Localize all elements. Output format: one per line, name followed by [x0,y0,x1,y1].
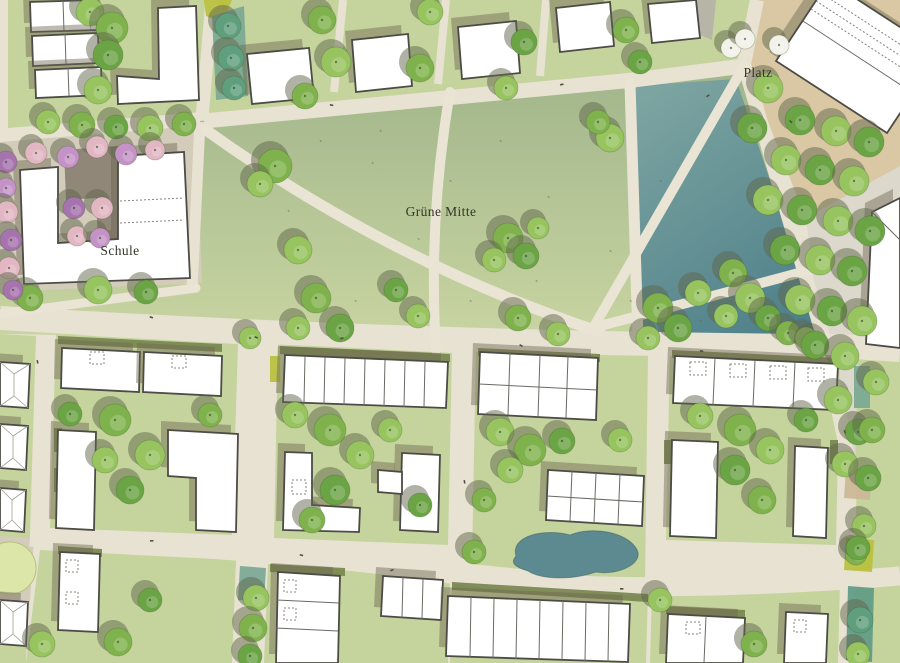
tree-highlight [3,208,14,219]
label-schule: Schule [100,243,139,258]
tree-highlight [763,195,778,210]
tree-highlight [7,236,18,247]
tree-trunk [249,655,251,657]
tree-trunk [875,381,877,383]
tree-trunk [609,137,611,139]
tree-trunk [8,267,10,269]
tree-trunk [311,519,313,521]
tree-trunk [429,11,431,13]
tree-highlight [872,378,885,391]
tree-highlight [780,245,795,260]
tree-trunk [561,440,563,442]
tree-highlight [554,330,566,342]
tree-trunk [844,463,846,465]
tree-trunk [619,439,621,441]
label-gruene-mitte: Grüne Mitte [406,204,477,219]
tree-trunk [274,165,276,167]
villa [549,0,614,52]
slab-footprint [143,352,222,396]
tree-trunk [304,95,306,97]
tree-highlight [336,324,350,338]
slab [136,343,222,396]
tree-trunk [149,454,151,456]
tree-highlight [868,426,881,439]
tree-trunk [639,61,641,63]
tree-highlight [101,456,114,469]
tree-trunk [837,399,839,401]
tree-highlight [735,425,751,441]
label-platz: Platz [744,65,773,80]
tree-trunk [778,44,780,46]
tree-highlight [93,143,104,154]
tree-highlight [94,286,108,300]
tree-highlight [44,118,56,130]
tree-highlight [831,126,846,141]
tree-highlight [795,115,810,130]
rowhouse-band-footprint [446,596,630,662]
tree-trunk [761,499,763,501]
tree-trunk [294,414,296,416]
tree-highlight [722,312,734,324]
tree-highlight [64,153,75,164]
tree-highlight [103,50,118,65]
tree-trunk [99,237,101,239]
slab-footprint [61,348,140,392]
tree-highlight [502,84,514,96]
slab-footprint [670,440,718,538]
tree-trunk [5,161,7,163]
tree-trunk [625,29,627,31]
tree-highlight [857,316,872,331]
tree-highlight [674,324,688,338]
slab-footprint [378,470,402,494]
tree-trunk [125,153,127,155]
slab-grid [471,343,598,420]
tree-highlight [864,474,877,487]
rowhouse-band [276,346,448,408]
tree-highlight [644,334,656,346]
villa-footprint [648,0,700,43]
tree-trunk [537,227,539,229]
tree-highlight [256,180,269,193]
tree-highlight [730,465,745,480]
hipped-house-footprint [0,362,30,408]
tree-trunk [209,414,211,416]
tree-highlight [696,412,709,425]
slab [777,603,828,663]
villa-footprint [556,2,614,52]
rowhouse-band [439,587,630,662]
tree-highlight [750,640,763,653]
tree-trunk [252,627,254,629]
tree-trunk [871,429,873,431]
tree-trunk [129,489,131,491]
slab [663,431,718,538]
tree-trunk [517,317,519,319]
slab-footprint [276,572,340,663]
tree-highlight [525,445,541,461]
tree-trunk [315,297,317,299]
slab-footprint [58,552,100,632]
tree-trunk [819,169,821,171]
tree-highlight [224,22,237,35]
tree-trunk [751,127,753,129]
tree-trunk [799,299,801,301]
tree-highlight [763,83,778,98]
tree-trunk [76,235,78,237]
tree-highlight [864,137,879,152]
slab [374,567,443,620]
tree-highlight [10,287,20,297]
tree-highlight [356,451,370,465]
tree-trunk [334,489,336,491]
tree-trunk [41,643,43,645]
tree-trunk [107,54,109,56]
tree-highlight [126,486,140,500]
tree-trunk [10,239,12,241]
tree-highlight [776,42,786,52]
slab-grid [539,461,644,526]
tree-highlight [834,396,848,410]
tree-highlight [833,216,848,231]
tree-trunk [6,211,8,213]
tree-trunk [853,180,855,182]
tree-trunk [97,89,99,91]
tree-trunk [183,123,185,125]
tree-trunk [699,415,701,417]
tree-highlight [594,118,606,130]
slab [49,421,96,530]
tree-trunk [101,207,103,209]
tree-highlight [311,293,326,308]
tree-trunk [359,454,361,456]
tree-trunk [419,67,421,69]
tree-trunk [819,259,821,261]
tree-trunk [339,327,341,329]
tree-trunk [863,525,865,527]
tree-trunk [473,551,475,553]
tree-trunk [767,87,769,89]
tree-highlight [94,86,108,100]
tree-trunk [89,11,91,13]
tree-trunk [149,599,151,601]
tree-trunk [867,477,869,479]
tree-trunk [732,272,734,274]
tree-trunk [767,199,769,201]
tree-trunk [35,152,37,154]
slab-footprint [784,612,828,663]
pond-layer [513,531,638,578]
tree-highlight [122,150,133,161]
tree-highlight [854,650,866,662]
tree-highlight [558,437,571,450]
tree-trunk [814,344,816,346]
tree-highlight [856,616,869,629]
tree-trunk [233,87,235,89]
tree-trunk [329,429,331,431]
tree-highlight [249,624,263,638]
masterplan-svg: Grüne Mitte Schule Platz [0,0,900,663]
tree-highlight [490,256,502,268]
tree-highlight [827,306,842,321]
tree-highlight [802,416,814,428]
tree-trunk [868,141,870,143]
tree-trunk [730,47,732,49]
tree-trunk [149,127,151,129]
tree-trunk [744,38,746,40]
tree-trunk [104,459,106,461]
tree-trunk [844,355,846,357]
tree-trunk [73,207,75,209]
tree-trunk [805,419,807,421]
tree-trunk [81,124,83,126]
hipped-house-footprint [0,424,28,470]
tree-trunk [509,469,511,471]
tree-highlight [308,516,321,529]
tree-highlight [112,123,124,135]
tree-trunk [96,146,98,148]
tree-trunk [767,317,769,319]
tree-highlight [758,496,772,510]
tree-trunk [749,297,751,299]
tree-highlight [811,341,825,355]
tree-trunk [67,156,69,158]
tree-highlight [426,8,439,21]
tree-trunk [483,499,485,501]
pond [513,531,638,578]
tree-highlight [742,36,752,46]
tree-trunk [145,291,147,293]
tree-trunk [831,310,833,312]
tree-trunk [799,119,801,121]
tree-trunk [647,337,649,339]
tree-highlight [38,640,51,653]
tree-trunk [739,429,741,431]
tree-highlight [622,26,635,39]
tree-highlight [781,155,796,170]
tree-highlight [294,324,306,336]
slab-footprint [793,446,828,538]
tree-trunk [597,121,599,123]
tree-highlight [854,544,866,556]
tree-trunk [529,449,531,451]
tree-highlight [534,224,545,235]
tree-trunk [505,87,507,89]
slab-footprint [381,576,443,620]
tree-trunk [154,149,156,151]
person-dot [620,588,623,590]
tree-trunk [659,599,661,601]
tree-trunk [230,57,232,59]
tree-highlight [70,204,81,215]
tree-trunk [869,230,871,232]
tree-highlight [766,446,780,460]
tree-highlight [206,411,218,423]
tree-highlight [480,496,492,508]
tree-highlight [331,57,346,72]
tree-trunk [769,449,771,451]
tree-highlight [414,312,426,324]
tree-trunk [395,289,397,291]
tree-trunk [851,270,853,272]
tree-highlight [325,425,341,441]
tree-trunk [389,429,391,431]
tree-highlight [392,286,404,298]
tree-highlight [270,161,287,178]
tree-highlight [66,410,78,422]
tree-highlight [252,594,265,607]
tree-trunk [861,320,863,322]
tree-trunk [69,413,71,415]
tree-highlight [470,548,482,560]
tree-trunk [837,220,839,222]
tree-highlight [849,176,864,191]
tree-trunk [734,469,736,471]
tree-trunk [117,641,119,643]
slab [786,437,828,538]
tree-highlight [227,54,240,67]
tree-trunk [335,61,337,63]
tree-highlight [294,246,308,260]
tree-highlight [514,314,527,327]
tree-highlight [146,596,158,608]
tree-trunk [753,643,755,645]
tree-trunk [255,597,257,599]
hipped-house-footprint [0,488,26,532]
tree-trunk [297,249,299,251]
tree-highlight [728,45,738,55]
tree-trunk [507,237,509,239]
tree-trunk [801,209,803,211]
tree-highlight [230,84,242,96]
rowhouse-band-footprint [283,355,448,408]
tree-highlight [416,64,430,78]
tree-highlight [246,334,257,345]
tree-highlight [606,134,620,148]
tree-trunk [525,255,527,257]
tree-trunk [697,292,699,294]
tree-highlight [26,294,39,307]
tree-highlight [386,426,398,438]
person-dot [150,540,153,542]
tree-highlight [797,205,812,220]
tree-highlight [291,411,304,424]
tree-highlight [815,255,830,270]
tree-trunk [785,159,787,161]
tree-highlight [522,252,535,265]
tree-trunk [417,315,419,317]
tree-trunk [557,333,559,335]
tree-trunk [857,653,859,655]
tree-highlight [330,485,345,500]
tree-highlight [747,123,762,138]
slab [51,543,100,632]
tree-highlight [152,147,162,157]
tree-highlight [145,450,160,465]
slab [54,339,140,392]
tree-trunk [115,126,117,128]
tree-highlight [416,501,428,513]
tree-highlight [865,226,880,241]
tree-highlight [841,352,855,366]
tree-highlight [98,204,109,215]
tree-highlight [110,415,126,431]
tree-highlight [616,436,628,448]
tree-trunk [114,419,116,421]
tree-trunk [677,327,679,329]
tree-highlight [847,266,862,281]
tree-trunk [297,327,299,329]
tree-highlight [496,428,510,442]
tree-trunk [97,289,99,291]
tree-trunk [784,249,786,251]
tree-trunk [725,315,727,317]
tree-trunk [523,41,525,43]
tree-highlight [656,596,668,608]
tree-highlight [506,466,519,479]
tree-trunk [493,259,495,261]
tree-highlight [694,289,707,302]
tree-highlight [520,38,533,51]
tree-trunk [419,504,421,506]
tree-trunk [12,289,14,291]
tree-trunk [47,121,49,123]
tree-trunk [321,19,323,21]
tree-highlight [636,58,648,70]
tree-trunk [249,337,251,339]
tree-highlight [301,92,314,105]
tree-highlight [142,288,154,300]
tree-highlight [180,120,192,132]
tree-highlight [795,295,810,310]
site-plan-canvas: Grüne Mitte Schule Platz [0,0,900,663]
tree-trunk [227,25,229,27]
tree-trunk [259,183,261,185]
slab [659,605,745,663]
tree-trunk [111,27,113,29]
tree-highlight [2,158,13,169]
tree-trunk [835,130,837,132]
tree-highlight [32,149,43,160]
slab [269,563,340,663]
tree-highlight [318,16,332,30]
tree-highlight [74,233,84,243]
tree-trunk [5,187,7,189]
tree-trunk [29,297,31,299]
tree-trunk [859,619,861,621]
tree-trunk [657,307,659,309]
tree-highlight [114,638,128,652]
tree-highlight [815,165,830,180]
tree-trunk [499,431,501,433]
tree-trunk [857,547,859,549]
